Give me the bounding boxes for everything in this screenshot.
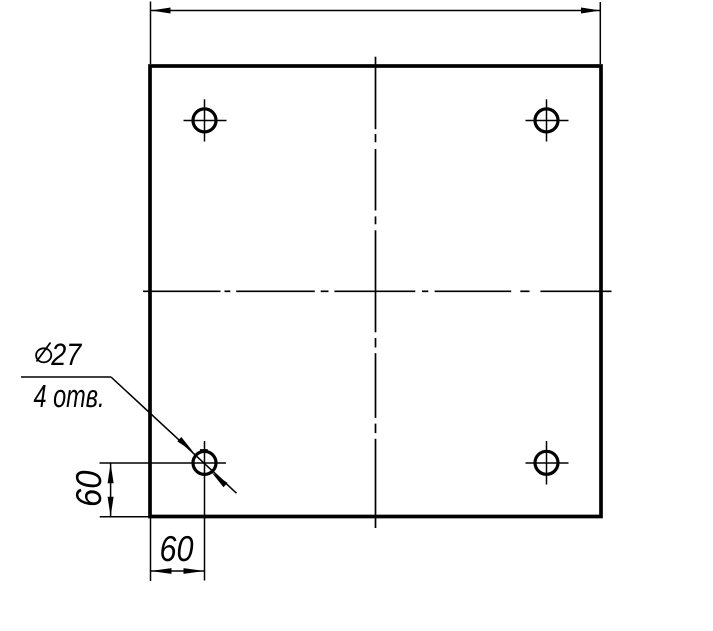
svg-text:4 отв.: 4 отв. <box>34 378 105 414</box>
svg-text:27: 27 <box>50 337 82 372</box>
svg-text:60: 60 <box>68 471 109 508</box>
svg-text:60: 60 <box>160 528 194 569</box>
